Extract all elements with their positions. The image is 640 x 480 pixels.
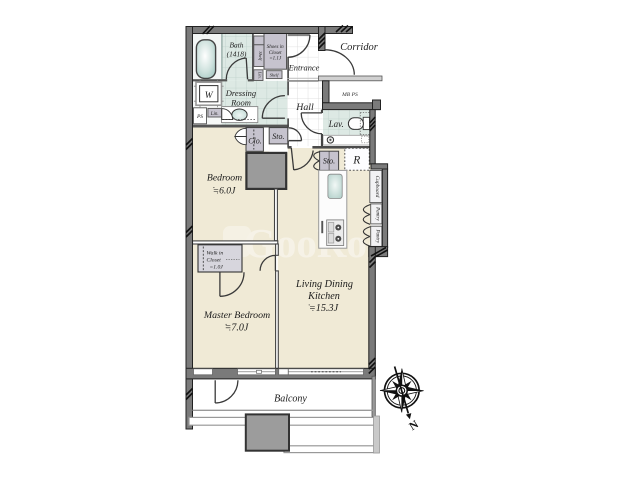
svg-text:Bath: Bath: [230, 41, 244, 50]
svg-text:R: R: [352, 155, 360, 167]
svg-text:Entrance: Entrance: [288, 64, 320, 73]
svg-text:Shoes in: Shoes in: [267, 45, 284, 50]
svg-text:(1418): (1418): [227, 50, 247, 59]
svg-text:Hall: Hall: [295, 102, 314, 113]
svg-text:Shelf: Shelf: [270, 73, 280, 78]
svg-text:Master Bedroom: Master Bedroom: [203, 310, 270, 321]
svg-text:Clo.: Clo.: [248, 136, 262, 145]
svg-text:W: W: [205, 91, 214, 101]
svg-text:Lin.: Lin.: [257, 71, 262, 79]
svg-text:=15.3J: =15.3J: [309, 303, 339, 314]
svg-text:Lin.: Lin.: [210, 112, 219, 117]
svg-text:Closet: Closet: [207, 257, 222, 263]
svg-text:Corridor: Corridor: [340, 42, 378, 53]
svg-text:Bedroom: Bedroom: [207, 173, 242, 184]
svg-text:Balcony: Balcony: [274, 393, 307, 404]
svg-text:PS: PS: [196, 114, 203, 120]
svg-text:Lav.: Lav.: [328, 119, 344, 129]
svg-text:=6.0J: =6.0J: [213, 186, 236, 197]
svg-text:=1.1J: =1.1J: [269, 56, 282, 61]
svg-text:Living Dining: Living Dining: [295, 279, 353, 290]
svg-text:Room: Room: [230, 97, 251, 107]
svg-text:Kitchen: Kitchen: [307, 291, 340, 302]
svg-text:Pantry: Pantry: [374, 206, 379, 221]
svg-text:Cupboard: Cupboard: [374, 176, 380, 198]
svg-text:Walk in: Walk in: [207, 250, 224, 256]
svg-text:Sto.: Sto.: [272, 132, 284, 141]
svg-text:MB PS: MB PS: [341, 92, 358, 98]
svg-text:=7.0J: =7.0J: [225, 323, 249, 334]
svg-text:Shelf: Shelf: [258, 51, 263, 61]
svg-text:Pantry: Pantry: [374, 228, 379, 243]
svg-text:Sto.: Sto.: [323, 156, 335, 165]
svg-text:=1.0J: =1.0J: [210, 265, 224, 271]
svg-text:Closet: Closet: [269, 51, 282, 56]
